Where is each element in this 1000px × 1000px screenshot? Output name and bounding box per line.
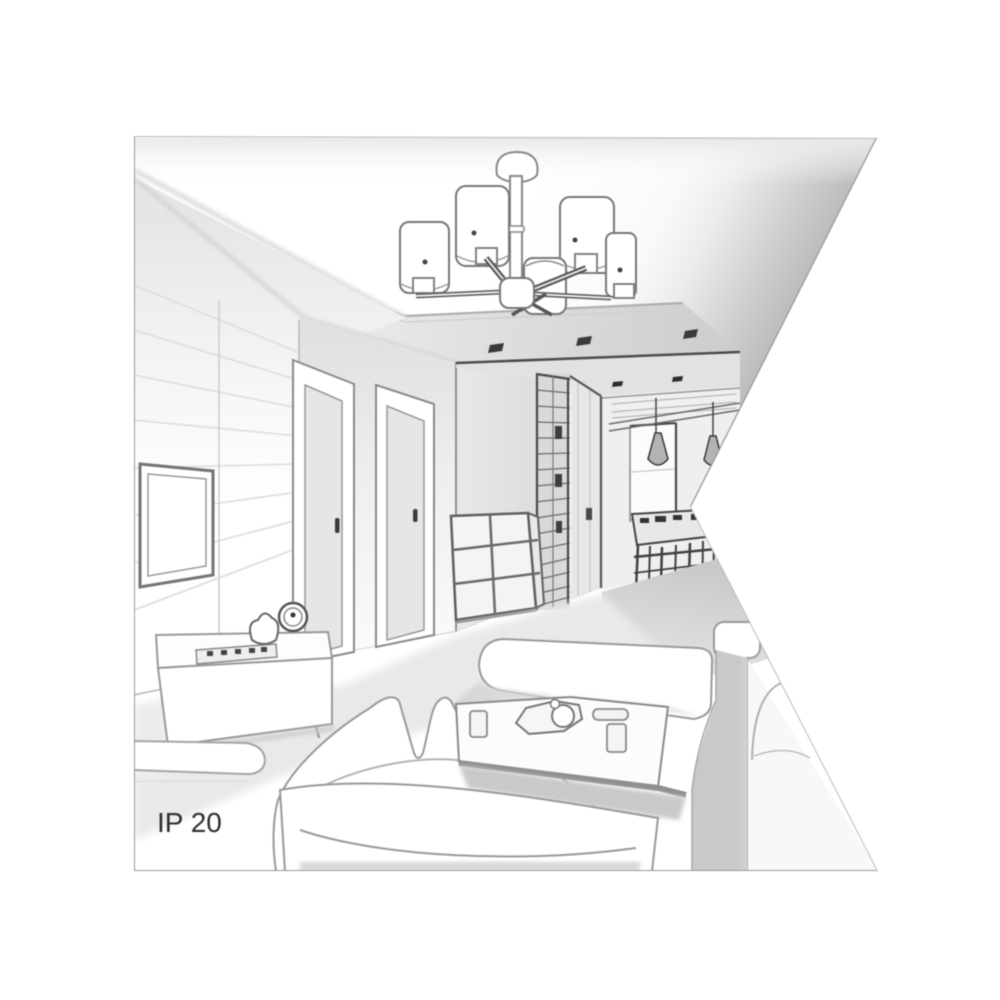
svg-text:IP 20: IP 20 bbox=[157, 807, 222, 838]
